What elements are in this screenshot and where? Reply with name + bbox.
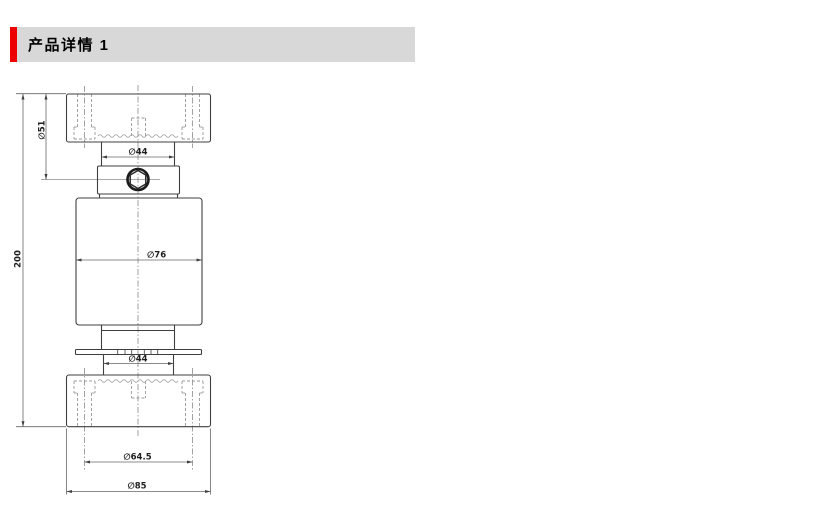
dimension-total-height: 200 — [14, 94, 67, 427]
red-accent-bar — [10, 27, 17, 62]
dim-label-bolt-circle: ∅64.5 — [123, 453, 151, 463]
lower-mounting-block — [67, 375, 211, 427]
dimension-lower-neck: ∅44 — [104, 355, 174, 366]
dim-label-lower-neck: ∅44 — [128, 355, 147, 365]
dimension-upper-neck: ∅44 — [102, 148, 175, 159]
centerlines — [41, 85, 193, 470]
load-cell-technical-drawing: 200 ∅51 ∅44 ∅76 ∅44 ∅64.5 — [0, 80, 260, 506]
dimension-body: ∅76 — [76, 251, 202, 262]
dim-label-end-cap: ∅85 — [127, 482, 146, 492]
technical-drawing-area: 200 ∅51 ∅44 ∅76 ∅44 ∅64.5 — [0, 80, 260, 506]
main-cylinder-body — [76, 198, 202, 325]
section-header: 产品详情 1 — [10, 27, 415, 62]
dim-label-total-height: 200 — [14, 250, 24, 268]
upper-block-hidden-holes — [74, 94, 203, 139]
section-title: 产品详情 1 — [28, 34, 110, 55]
dim-label-upper-boss: ∅51 — [38, 120, 48, 139]
dim-label-upper-neck: ∅44 — [128, 148, 147, 158]
lower-block-hidden-holes — [74, 380, 203, 426]
dimension-upper-boss: ∅51 — [38, 94, 48, 180]
dim-label-body: ∅76 — [147, 251, 166, 261]
hex-boss — [98, 166, 180, 198]
dimension-bolt-circle: ∅64.5 — [85, 453, 193, 464]
